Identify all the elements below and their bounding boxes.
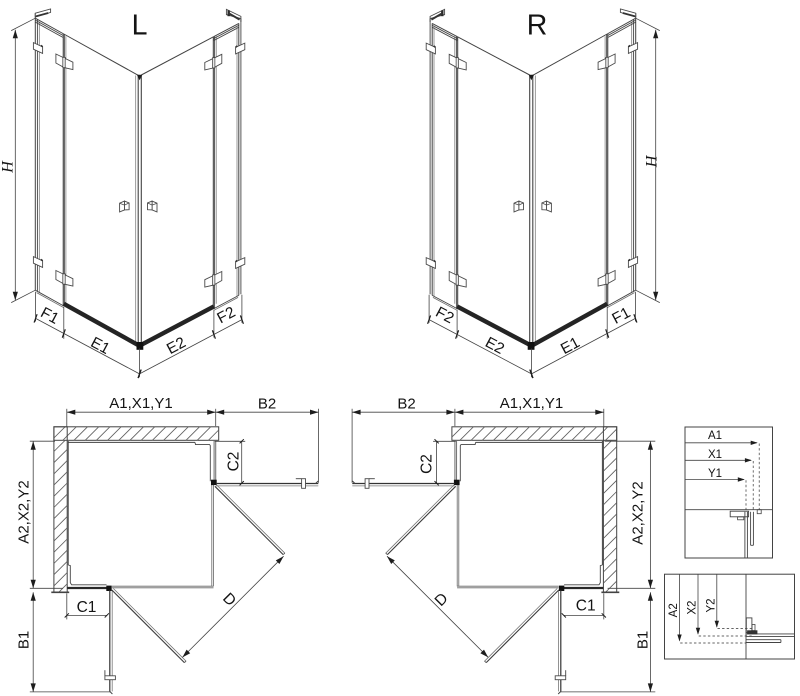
svg-text:A2,X2,Y2: A2,X2,Y2: [16, 480, 33, 543]
svg-text:A1,X1,Y1: A1,X1,Y1: [500, 395, 563, 412]
svg-text:C2: C2: [419, 454, 436, 474]
svg-text:B1: B1: [635, 631, 652, 649]
svg-text:B2: B2: [397, 396, 415, 413]
svg-text:A2: A2: [668, 603, 680, 617]
svg-text:Y2: Y2: [705, 598, 717, 612]
svg-text:X1: X1: [708, 449, 722, 461]
svg-text:A1: A1: [708, 430, 722, 442]
svg-text:R: R: [527, 9, 548, 41]
svg-text:C1: C1: [576, 598, 596, 615]
svg-text:A1,X1,Y1: A1,X1,Y1: [109, 395, 172, 412]
svg-text:A2,X2,Y2: A2,X2,Y2: [630, 481, 647, 544]
svg-text:B2: B2: [258, 396, 276, 413]
svg-text:Y1: Y1: [708, 468, 722, 480]
svg-text:X2: X2: [687, 601, 699, 615]
svg-text:C1: C1: [77, 599, 97, 616]
svg-text:H: H: [643, 154, 660, 168]
svg-text:C2: C2: [226, 452, 243, 472]
svg-text:H: H: [0, 160, 16, 174]
svg-text:B1: B1: [16, 631, 33, 649]
svg-text:L: L: [132, 9, 148, 41]
